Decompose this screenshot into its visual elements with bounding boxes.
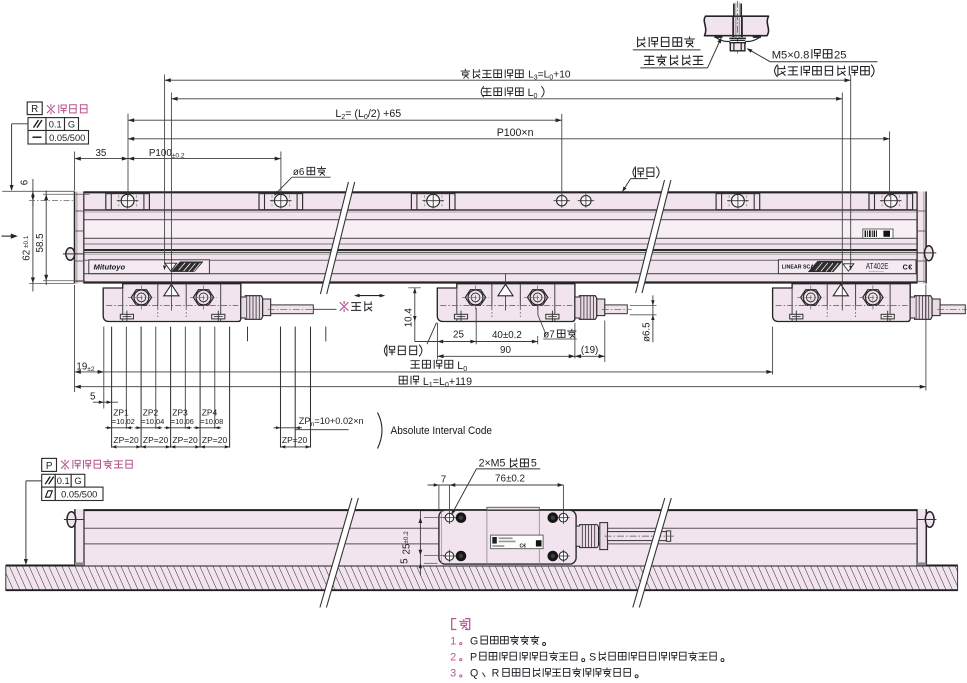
svg-text:ZP=20: ZP=20 xyxy=(282,435,308,445)
svg-text:ø6: ø6 xyxy=(293,167,305,178)
svg-text:(19): (19) xyxy=(581,345,598,356)
svg-text:S: S xyxy=(589,651,596,663)
svg-text:R: R xyxy=(31,104,38,115)
svg-text:G: G xyxy=(74,476,81,486)
svg-text:7: 7 xyxy=(441,474,446,485)
svg-text:G: G xyxy=(68,120,75,130)
svg-text:AT402E: AT402E xyxy=(866,261,889,271)
svg-text:C: C xyxy=(903,263,908,272)
svg-text:Mitutoyo: Mitutoyo xyxy=(94,263,126,272)
svg-text:ZP3: ZP3 xyxy=(172,408,188,418)
svg-text:ZP=20: ZP=20 xyxy=(113,435,139,445)
svg-text:=10.02: =10.02 xyxy=(112,417,135,426)
svg-text:=10.06: =10.06 xyxy=(171,417,194,426)
svg-text:P: P xyxy=(46,461,53,472)
svg-text:6: 6 xyxy=(20,179,31,185)
svg-text:0.1: 0.1 xyxy=(57,476,70,486)
svg-text:25: 25 xyxy=(834,49,846,61)
svg-text:=10.08: =10.08 xyxy=(200,417,223,426)
svg-text:L2= (L0/2) +65: L2= (L0/2) +65 xyxy=(335,108,401,121)
svg-text:76±0.2: 76±0.2 xyxy=(495,474,525,485)
svg-text:25: 25 xyxy=(453,330,464,341)
svg-text:R: R xyxy=(492,668,500,680)
svg-text:58.5: 58.5 xyxy=(35,233,46,253)
svg-text:ZP=20: ZP=20 xyxy=(143,435,169,445)
svg-text:C€: C€ xyxy=(520,543,527,549)
svg-text:5: 5 xyxy=(531,457,537,469)
svg-text:0.1: 0.1 xyxy=(49,120,62,130)
svg-text:35: 35 xyxy=(95,148,106,159)
svg-text:P: P xyxy=(470,651,477,663)
svg-text:ZP=20: ZP=20 xyxy=(202,435,228,445)
svg-text:10.4: 10.4 xyxy=(404,308,415,328)
svg-text:=10.04: =10.04 xyxy=(141,417,164,426)
svg-text:5: 5 xyxy=(90,392,96,403)
svg-text:ZP1: ZP1 xyxy=(113,408,129,418)
svg-text:ZP=20: ZP=20 xyxy=(172,435,198,445)
svg-text:2: 2 xyxy=(450,651,456,663)
svg-text:Q: Q xyxy=(470,668,478,680)
svg-text:Absolute Interval Code: Absolute Interval Code xyxy=(391,425,493,437)
svg-text:3: 3 xyxy=(450,668,456,680)
svg-text:€: € xyxy=(908,263,912,272)
svg-text:ZP4: ZP4 xyxy=(202,408,218,418)
svg-text:1: 1 xyxy=(450,635,456,647)
svg-text:0.05/500: 0.05/500 xyxy=(49,133,85,143)
svg-text:ZP2: ZP2 xyxy=(143,408,159,418)
svg-text:ø6.5: ø6.5 xyxy=(641,322,652,342)
svg-text:2×M5: 2×M5 xyxy=(479,457,506,469)
svg-text:ZPn=10+0.02×n: ZPn=10+0.02×n xyxy=(299,416,364,428)
svg-text:90: 90 xyxy=(500,345,511,356)
svg-text:0.05/500: 0.05/500 xyxy=(61,489,97,499)
svg-text:40±0.2: 40±0.2 xyxy=(492,330,522,341)
svg-text:G: G xyxy=(470,635,478,647)
svg-text:P100×n: P100×n xyxy=(497,127,534,139)
svg-text:5: 5 xyxy=(399,558,410,564)
svg-text:M5×0.8: M5×0.8 xyxy=(772,49,810,61)
